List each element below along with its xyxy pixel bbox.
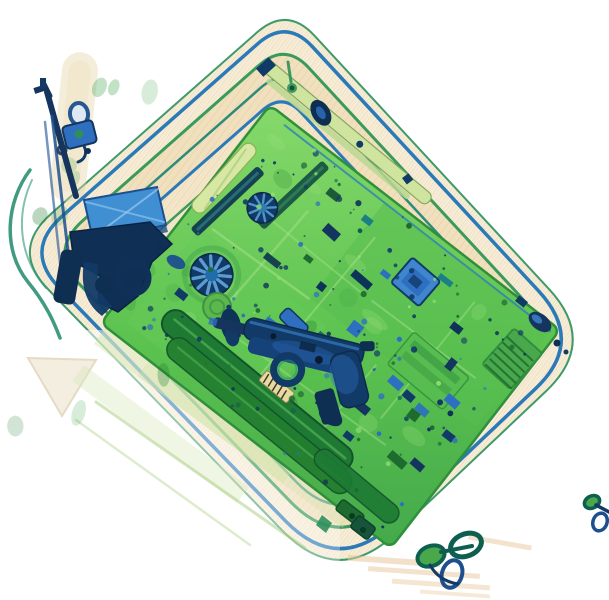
xray-scan-canvas [0,0,609,600]
bottom-clasp-loop-2 [447,529,485,561]
hammer [360,341,375,351]
xray-baggage-scan [0,0,609,600]
